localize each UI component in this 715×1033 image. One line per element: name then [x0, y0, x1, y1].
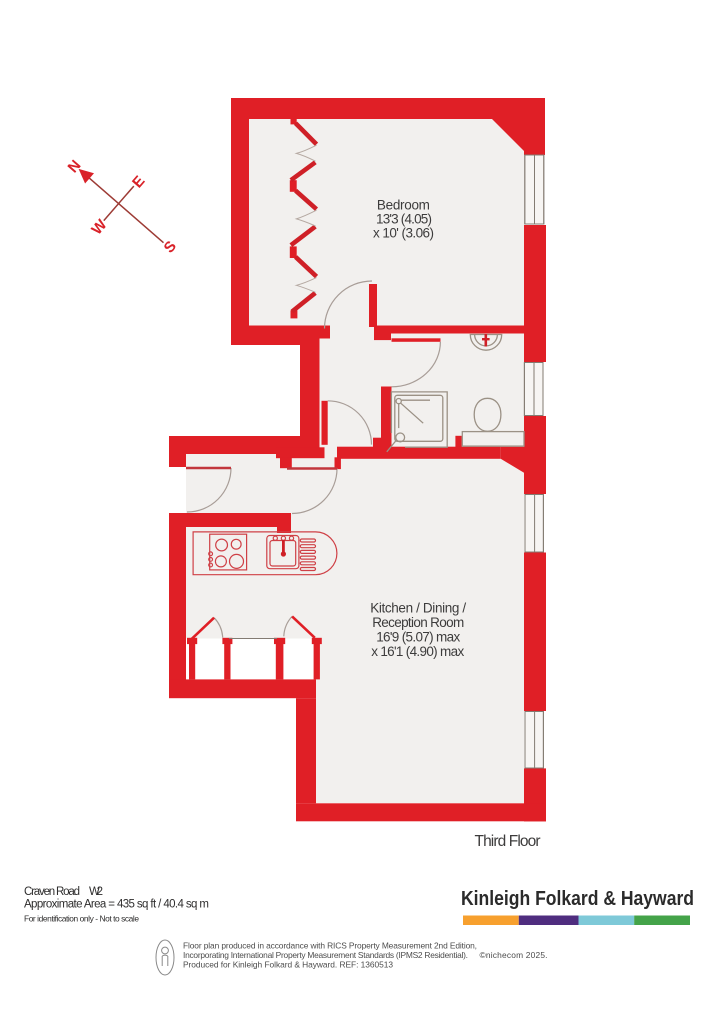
- svg-text:Kinleigh Folkard & Hayward: Kinleigh Folkard & Hayward: [461, 888, 694, 910]
- svg-text:Approximate Area = 435 sq ft /: Approximate Area = 435 sq ft / 40.4 sq m: [24, 899, 209, 911]
- svg-text:Kitchen / Dining /: Kitchen / Dining /: [370, 601, 466, 616]
- svg-text:x 10' (3.06): x 10' (3.06): [373, 226, 434, 241]
- svg-text:Floor plan produced in accorda: Floor plan produced in accordance with R…: [183, 941, 477, 951]
- svg-text:Produced for Kinleigh Folkard: Produced for Kinleigh Folkard & Hayward.…: [183, 960, 393, 970]
- svg-text:Bedroom: Bedroom: [377, 198, 430, 213]
- svg-text:Craven Road: Craven Road: [24, 886, 80, 898]
- svg-text:16'9 (5.07) max: 16'9 (5.07) max: [376, 630, 460, 645]
- svg-text:Incorporating International Pr: Incorporating International Property Mea…: [183, 950, 468, 960]
- svg-text:©nichecom 2025.: ©nichecom 2025.: [480, 950, 548, 960]
- svg-text:For identification only - Not: For identification only - Not to scale: [24, 914, 139, 924]
- svg-text:13'3 (4.05): 13'3 (4.05): [376, 212, 432, 227]
- svg-text:Third Floor: Third Floor: [475, 833, 541, 850]
- svg-text:Reception Room: Reception Room: [372, 615, 464, 630]
- svg-text:x 16'1 (4.90) max: x 16'1 (4.90) max: [371, 644, 464, 659]
- svg-text:W2: W2: [89, 886, 103, 898]
